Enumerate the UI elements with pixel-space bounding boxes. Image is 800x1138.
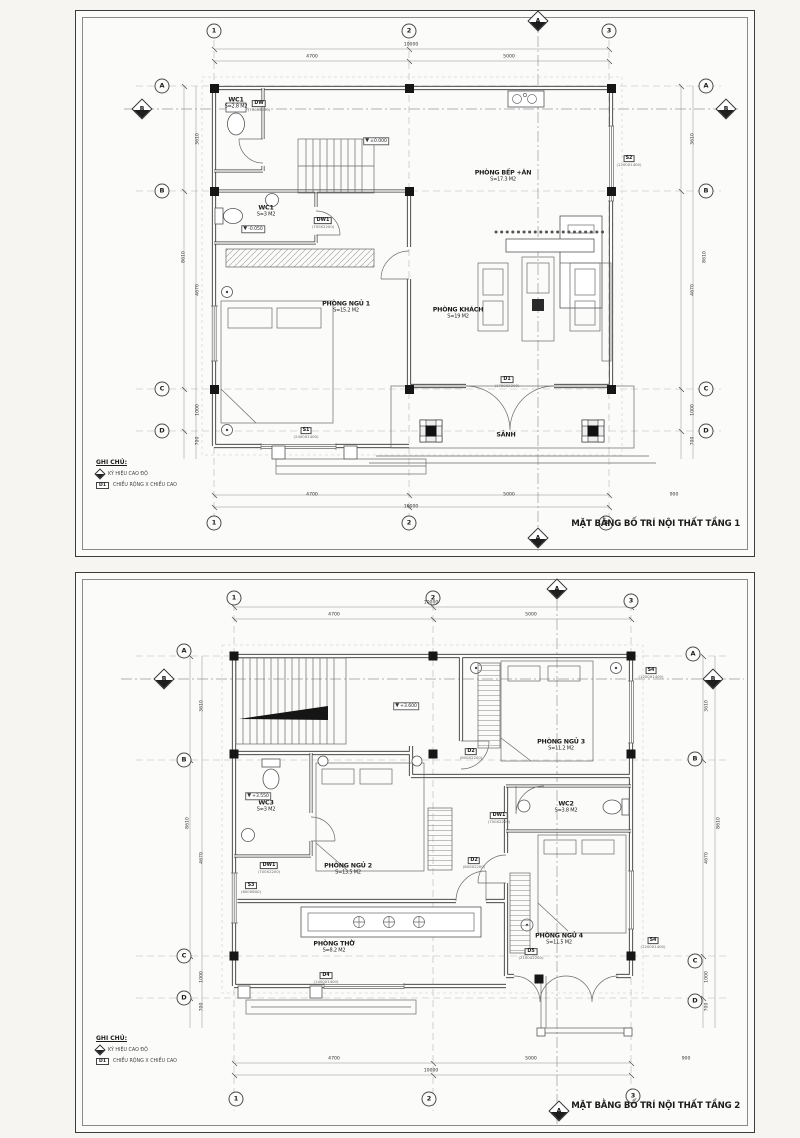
notes-line: CHIỀU RỘNG X CHIỀU CAO <box>113 483 177 488</box>
grid-bubble: C <box>688 954 703 969</box>
sheet-floor1: 123123ABCDABCD AABB WC1S=2.8 M2 WC1S=3 M… <box>75 10 755 557</box>
elevation-symbol-icon <box>94 1044 105 1055</box>
elevation-mark: +3.600 <box>393 702 419 710</box>
grid-bubble: A <box>177 644 192 659</box>
grid-bubble: D <box>177 991 192 1006</box>
floor2-labels: 123123ABCDABCD AABB PHÒNG NGỦ 3S=11.2 M2… <box>76 573 754 1132</box>
dimension-text: 700 <box>200 1003 205 1012</box>
grid-bubble: C <box>155 382 170 397</box>
dimension-text: 1000 <box>691 404 696 416</box>
dimension-text: 5000 <box>525 1057 537 1062</box>
grid-bubble: 1 <box>207 516 222 531</box>
door-window-tag: S3(600X600) <box>241 872 261 894</box>
grid-bubble: B <box>155 184 170 199</box>
door-window-tag: S4(1200X1400) <box>641 927 666 949</box>
dimension-text: 4670 <box>196 284 201 296</box>
door-window-tag: DW1(700X2200) <box>488 802 510 824</box>
dimension-text: 4700 <box>328 613 340 618</box>
dimension-text: 10000 <box>424 601 439 606</box>
dimension-text: 900 <box>682 1057 691 1062</box>
dimension-text: 8610 <box>717 817 722 829</box>
section-mark: A <box>548 1100 569 1121</box>
elevation-symbol-icon <box>94 468 105 479</box>
section-mark: B <box>715 98 736 119</box>
dimension-text: 700 <box>705 1003 710 1012</box>
grid-bubble: 2 <box>422 1092 437 1107</box>
dimension-text: 5000 <box>503 493 515 498</box>
door-tag-sample: D1 <box>96 1058 109 1065</box>
notes-heading: GHI CHÚ: <box>96 1035 266 1042</box>
grid-bubble: A <box>686 647 701 662</box>
section-mark: B <box>153 668 174 689</box>
grid-bubble: B <box>177 753 192 768</box>
dimension-text: 700 <box>691 437 696 446</box>
room-label: PHÒNG NGỦ 2S=13.5 M2 <box>324 863 372 876</box>
dimension-text: 1000 <box>196 404 201 416</box>
door-window-tag: DW1(700X2200) <box>312 207 334 229</box>
grid-bubble: 3 <box>602 24 617 39</box>
dimension-text: 4670 <box>691 284 696 296</box>
door-window-tag: S1(2400X1400) <box>294 417 319 439</box>
grid-bubble: D <box>688 994 703 1009</box>
door-window-tag: D5(2100X2200) <box>519 938 544 960</box>
dimension-text: 1000 <box>200 971 205 983</box>
grid-bubble: A <box>699 79 714 94</box>
dimension-text: 8610 <box>186 817 191 829</box>
door-window-tag: S2(1200X1400) <box>617 145 642 167</box>
dimension-text: 8610 <box>182 251 187 263</box>
door-window-tag: DW(700X2200) <box>248 90 270 112</box>
dimension-text: 4700 <box>306 493 318 498</box>
grid-bubble: 1 <box>229 1092 244 1107</box>
room-label: PHÒNG NGỦ 1S=15.2 M2 <box>322 301 370 314</box>
door-window-tag: S4(1200X1400) <box>639 657 664 679</box>
dimension-text: 900 <box>670 493 679 498</box>
room-label: WC1S=3 M2 <box>257 205 275 218</box>
sheet-title-floor1: MẶT BẰNG BỐ TRÍ NỘI THẤT TẦNG 1 <box>571 519 740 529</box>
room-label: SẢNH <box>496 432 515 439</box>
scanned-drawing-page: 123123ABCDABCD AABB WC1S=2.8 M2 WC1S=3 M… <box>0 0 800 1138</box>
dimension-text: 3610 <box>200 700 205 712</box>
sheet-title-floor2: MẶT BẰNG BỐ TRÍ NỘI THẤT TẦNG 2 <box>571 1101 740 1111</box>
dimension-text: 10000 <box>404 505 419 510</box>
dimension-text: 1000 <box>705 971 710 983</box>
room-label: PHÒNG NGỦ 3S=11.2 M2 <box>537 739 585 752</box>
dimension-text: 10000 <box>404 43 419 48</box>
grid-bubble: C <box>177 949 192 964</box>
door-window-tag: DW1(700X2200) <box>258 852 280 874</box>
notes-line: KÝ HIỆU CAO ĐỘ <box>108 1048 148 1053</box>
dimension-text: 10000 <box>424 1069 439 1074</box>
grid-bubble: C <box>699 382 714 397</box>
grid-bubble: A <box>155 79 170 94</box>
section-mark: B <box>702 668 723 689</box>
notes-block: GHI CHÚ: KÝ HIỆU CAO ĐỘ D1 CHIỀU RỘNG X … <box>96 1035 266 1065</box>
room-label: PHÒNG THỜS=8.2 M2 <box>313 941 354 954</box>
notes-heading: GHI CHÚ: <box>96 459 266 466</box>
grid-bubble: 1 <box>227 591 242 606</box>
dimension-text: 3610 <box>196 133 201 145</box>
dimension-text: 4700 <box>306 55 318 60</box>
sheet-floor2: 123123ABCDABCD AABB PHÒNG NGỦ 3S=11.2 M2… <box>75 572 755 1133</box>
elevation-mark: -0.050 <box>241 225 265 233</box>
section-mark: A <box>527 10 548 31</box>
grid-bubble: 3 <box>624 594 639 609</box>
door-tag-sample: D1 <box>96 482 109 489</box>
dimension-text: 4670 <box>705 852 710 864</box>
grid-bubble: D <box>699 424 714 439</box>
grid-bubble: B <box>688 752 703 767</box>
dimension-text: 4700 <box>328 1057 340 1062</box>
section-mark: B <box>131 98 152 119</box>
room-label: WC2S=3.8 M2 <box>555 801 578 814</box>
section-mark: A <box>546 578 567 599</box>
grid-bubble: 2 <box>402 24 417 39</box>
door-window-tag: D2(800X2200) <box>460 738 482 760</box>
grid-bubble: 2 <box>402 516 417 531</box>
notes-block: GHI CHÚ: KÝ HIỆU CAO ĐỘ D1 CHIỀU RỘNG X … <box>96 459 266 489</box>
dimension-text: 3610 <box>705 700 710 712</box>
elevation-mark: +3.550 <box>245 792 271 800</box>
notes-line: KÝ HIỆU CAO ĐỘ <box>108 472 148 477</box>
room-label: WC1S=2.8 M2 <box>225 97 248 110</box>
section-mark: A <box>527 527 548 548</box>
grid-bubble: D <box>155 424 170 439</box>
room-label: PHÒNG BẾP +ĂNS=17.3 M2 <box>475 170 532 183</box>
grid-bubble: B <box>699 184 714 199</box>
floor1-labels: 123123ABCDABCD AABB WC1S=2.8 M2 WC1S=3 M… <box>76 11 754 556</box>
dimension-text: 700 <box>196 437 201 446</box>
door-window-tag: D2(800X2200) <box>463 847 485 869</box>
dimension-text: 3610 <box>691 133 696 145</box>
notes-line: CHIỀU RỘNG X CHIỀU CAO <box>113 1059 177 1064</box>
door-window-tag: D1(1700X2200) <box>495 366 520 388</box>
room-label: WC3S=3 M2 <box>257 800 275 813</box>
dimension-text: 4670 <box>200 852 205 864</box>
door-window-tag: D4(1400X1400) <box>314 962 339 984</box>
dimension-text: 8610 <box>703 251 708 263</box>
elevation-mark: ±0.000 <box>363 137 389 145</box>
grid-bubble: 1 <box>207 24 222 39</box>
room-label: PHÒNG KHÁCHS=19 M2 <box>433 307 484 320</box>
dimension-text: 5000 <box>503 55 515 60</box>
dimension-text: 5000 <box>525 613 537 618</box>
